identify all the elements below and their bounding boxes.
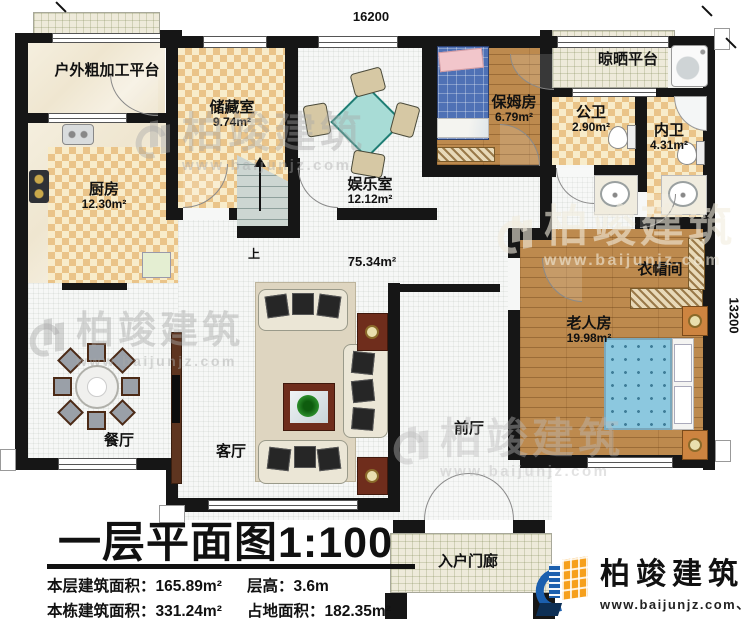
room-label-outdoor-platform: 户外粗加工平台 [54,62,159,79]
column-marker [715,440,731,462]
window [52,33,163,43]
window [48,113,127,123]
chair [109,347,136,374]
room-name: 保姆房 [491,94,536,111]
fridge [142,252,171,278]
dimension-tick [701,5,712,16]
floor-plan-canvas: 户外粗加工平台 储藏室 9.74m² 厨房 12.30m² 娱乐室 12.12m… [0,0,750,627]
lamp [688,438,702,452]
dimension-top: 16200 [353,9,389,24]
room-area: 19.98m² [566,332,611,346]
room-area: 9.74m² [209,116,254,130]
bed-sheet [437,118,489,138]
stat-floor-area: 本层建筑面积：165.89m² [47,574,247,596]
toilet-tank [627,125,636,149]
bench [437,147,495,162]
toilet [608,126,628,149]
room-label-inner-bath: 内卫 4.31m² [650,122,688,153]
room-name: 厨房 [89,181,119,198]
room-label-entertainment: 娱乐室 12.12m² [347,176,392,207]
wall [552,88,574,97]
wall [285,36,298,167]
sofa-cushion [351,379,375,403]
room-label-kitchen: 厨房 12.30m² [82,181,127,212]
sofa-cushion [351,407,375,431]
sofa-cushion [317,294,342,319]
room-area: 6.79m² [491,111,536,125]
lazy-susan [87,377,107,397]
chair [87,343,106,362]
window [572,88,658,97]
wall [166,36,178,220]
beam [62,283,127,290]
kitchen-sink [62,124,94,145]
wall [337,208,437,220]
room-label-nanny: 保姆房 6.79m² [491,94,536,125]
window [203,36,267,48]
dimension-right: 13200 [727,297,742,333]
stat-floor-height: 层高：3.6m [247,574,391,596]
room-name: 餐厅 [104,432,134,449]
stat-footprint-area: 占地面积：182.35m² [247,599,391,621]
title-rule [47,564,415,569]
toilet-tank [696,141,705,165]
room-label-living: 客厅 [216,443,246,460]
sofa-cushion [292,293,314,315]
wardrobe [688,238,705,290]
plan-title: 一层平面图1:100 [58,508,393,570]
sofa-cushion [351,351,375,375]
pillow [674,386,692,424]
column-marker [0,449,16,471]
lamp [688,314,702,328]
pillow [674,344,692,382]
window [557,36,669,48]
room-name: 客厅 [216,443,246,460]
room-area: 12.30m² [82,198,127,212]
room-area: 4.31m² [650,139,688,153]
stairs-arrow-head [254,157,266,167]
door-opening [183,208,229,220]
room-name: 衣帽间 [637,261,682,278]
room-label-front-hall: 前厅 [454,420,484,437]
chair [57,399,84,426]
outdoor-platform-deck [33,12,160,35]
sofa-cushion [265,294,290,319]
room-label-drying-platform: 晾晒平台 [598,51,658,68]
brand-logo-text: 柏竣建筑 www.baijunjz.com、 [600,560,750,613]
room-label-dining: 餐厅 [104,432,134,449]
wall-left [15,43,28,470]
sofa-cushion [294,446,316,468]
wall [393,520,425,533]
room-label-entry-porch: 入户门廊 [438,553,498,570]
sofa-cushion [267,447,292,472]
tv [172,375,180,423]
chair [109,399,136,426]
hall-area-label: 75.34m² [348,254,396,269]
dimension-tick [55,1,66,12]
elder-bed [604,338,672,430]
room-label-elder-room: 老人房 19.98m² [566,315,611,346]
plant [297,395,319,417]
room-label-storage: 储藏室 9.74m² [209,99,254,130]
room-name: 娱乐室 [347,176,392,193]
window [318,36,398,48]
room-name: 户外粗加工平台 [54,62,159,79]
plan-stats: 本层建筑面积：165.89m² 层高：3.6m 本栋建筑面积：331.24m² … [47,574,391,621]
room-name: 内卫 [654,122,684,139]
brand-logo-icon [536,556,592,616]
room-name: 储藏室 [209,99,254,116]
room-name: 晾晒平台 [598,51,658,68]
wall [437,165,540,177]
stairs-up-label: 上 [248,245,260,262]
chair [121,377,140,396]
wall [15,33,55,43]
room-name: 入户门廊 [438,553,498,570]
washing-machine [671,45,708,87]
side-table-knob [365,325,379,339]
wall [513,520,545,533]
window [587,457,673,468]
wall [508,228,552,240]
room-name: 老人房 [566,315,611,332]
brand-logo: 柏竣建筑 www.baijunjz.com、 [536,556,750,616]
wall [237,226,300,238]
wall [422,36,437,177]
chair [87,411,106,430]
side-table-knob [365,469,379,483]
brand-url: www.baijunjz.com、 [600,594,750,613]
room-label-public-bath: 公卫 2.90m² [572,104,610,135]
vanity-sink [600,181,630,207]
room-area: 2.90m² [572,121,610,135]
room-name: 前厅 [454,420,484,437]
dining-table-set [53,343,141,431]
door-opening [508,258,520,310]
beam [400,284,500,292]
room-name: 公卫 [576,104,606,121]
stairs-arrow-line [259,165,261,211]
chair [53,377,72,396]
brand-name: 柏竣建筑 [600,560,750,590]
room-area: 12.12m² [347,193,392,207]
window [58,458,137,470]
chair [57,347,84,374]
wall [388,283,400,512]
stat-building-area: 本栋建筑面积：331.24m² [47,599,247,621]
room-label-cloakroom: 衣帽间 [637,261,682,278]
sofa-cushion [317,447,342,472]
wall [540,30,552,177]
stove [29,170,49,203]
